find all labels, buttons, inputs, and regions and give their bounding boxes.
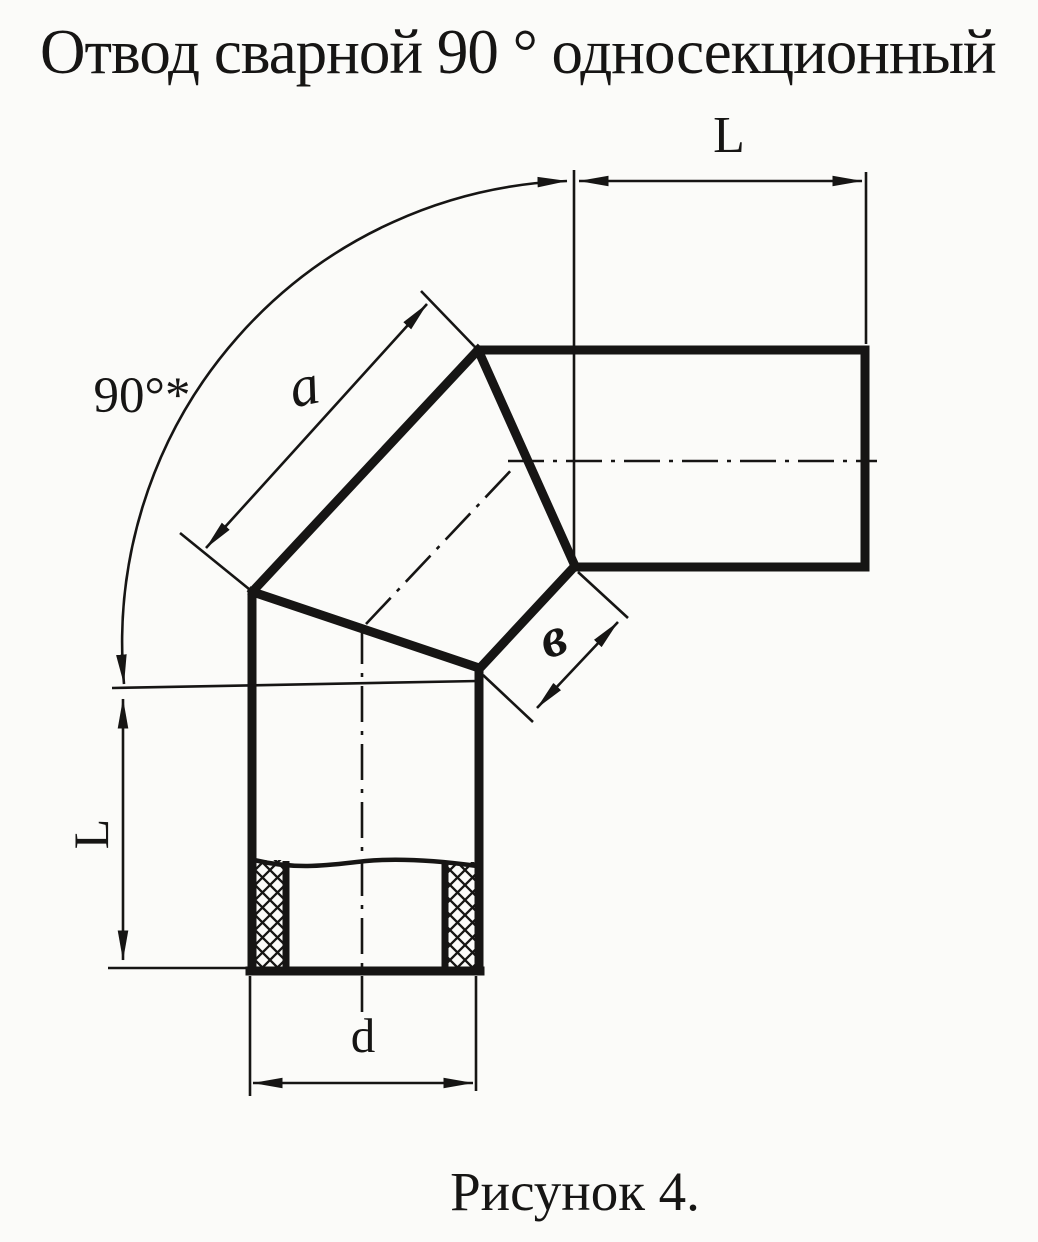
bottom-wall-section (254, 860, 477, 967)
dimension-L-top (574, 170, 866, 558)
dimension-L-left (108, 681, 478, 968)
hatch-left (255, 860, 283, 967)
dim-label-L-left: L (61, 804, 121, 864)
angle-arc (122, 181, 567, 684)
dim-label-d: d (331, 1006, 395, 1066)
pipe-centerlines (362, 461, 877, 1016)
scanned-drawing-page: Отвод сварной 90 ° односекционный (0, 0, 1038, 1242)
dimension-a (180, 291, 474, 589)
dim-label-L-top: L (700, 106, 758, 166)
dim-label-angle: 90°* (72, 368, 212, 424)
dim-label-a: a (266, 348, 342, 424)
hatch-right (447, 862, 476, 967)
figure-caption: Рисунок 4. (375, 1160, 775, 1223)
